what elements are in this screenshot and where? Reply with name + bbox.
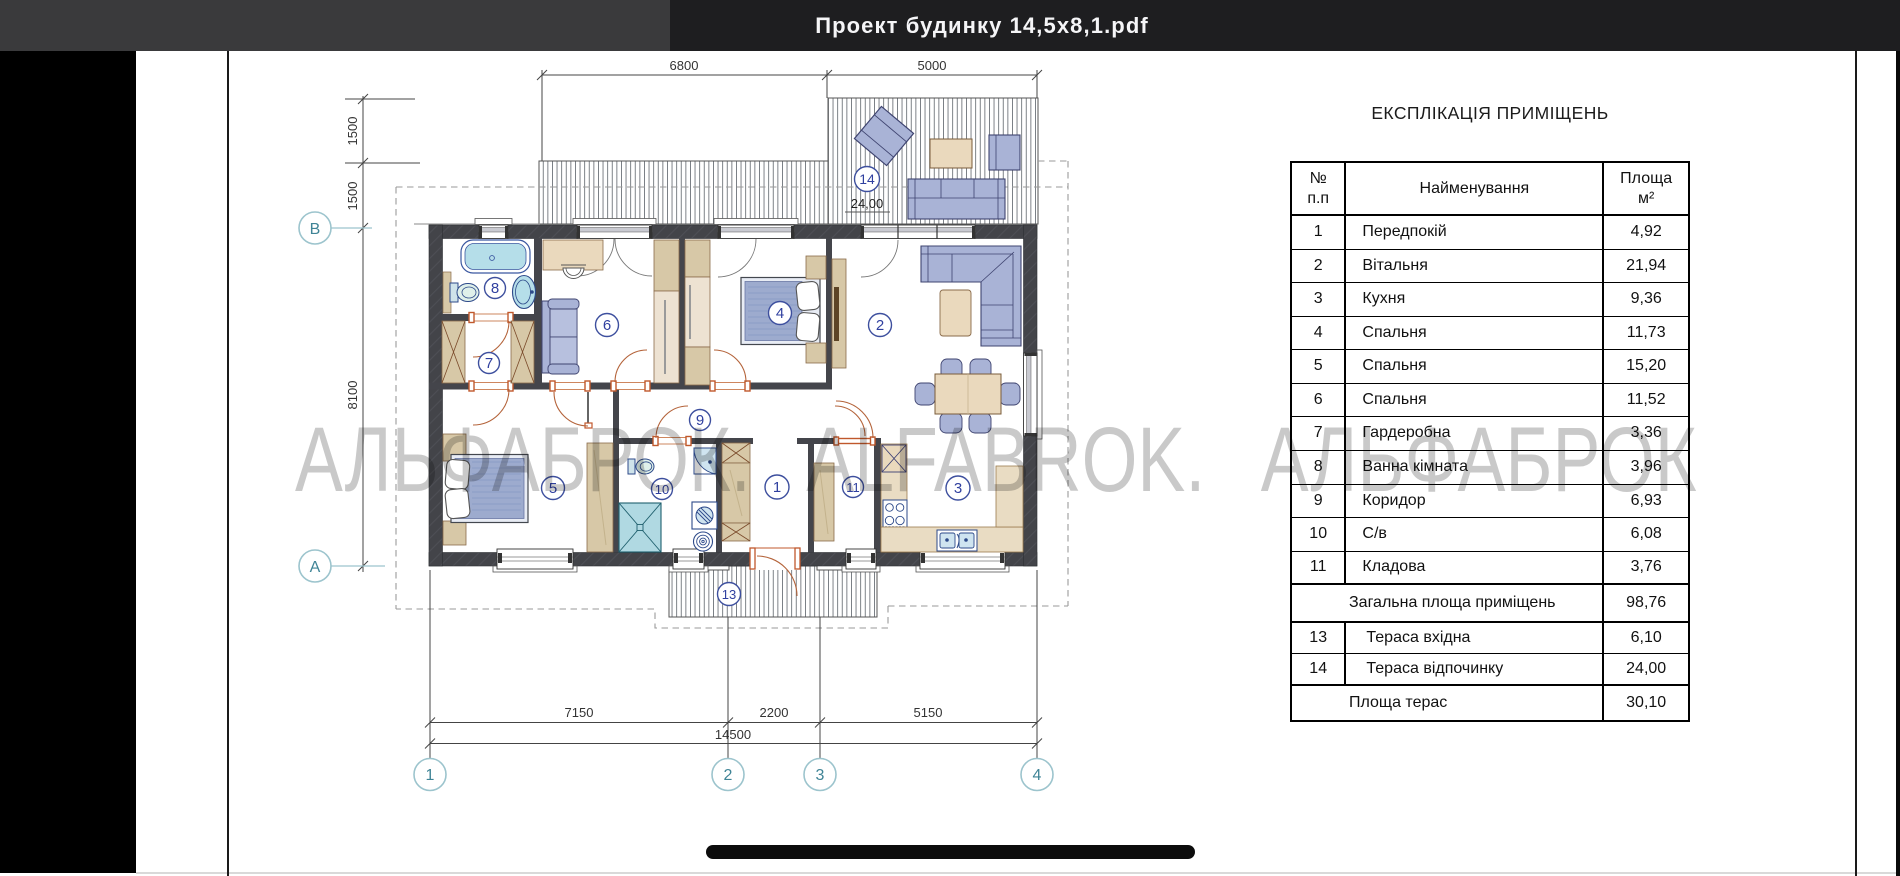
svg-text:2: 2: [876, 317, 884, 334]
svg-text:13: 13: [722, 587, 736, 602]
svg-text:1: 1: [426, 767, 435, 784]
svg-text:7: 7: [485, 355, 493, 372]
svg-text:5000: 5000: [918, 58, 947, 73]
svg-text:B: B: [310, 221, 321, 238]
svg-text:24,00: 24,00: [851, 196, 884, 211]
svg-text:4: 4: [1033, 767, 1042, 784]
svg-text:1500: 1500: [345, 117, 360, 146]
svg-text:2200: 2200: [760, 705, 789, 720]
svg-text:1500: 1500: [345, 182, 360, 211]
svg-text:2: 2: [724, 767, 733, 784]
svg-text:5150: 5150: [914, 705, 943, 720]
svg-text:3: 3: [816, 767, 825, 784]
svg-text:8100: 8100: [345, 381, 360, 410]
svg-text:14: 14: [859, 171, 875, 187]
svg-text:14500: 14500: [715, 727, 751, 742]
svg-text:7150: 7150: [565, 705, 594, 720]
svg-text:6: 6: [603, 317, 611, 334]
svg-text:4: 4: [776, 305, 784, 322]
svg-text:8: 8: [491, 280, 499, 297]
svg-text:A: A: [310, 559, 321, 576]
svg-text:6800: 6800: [670, 58, 699, 73]
